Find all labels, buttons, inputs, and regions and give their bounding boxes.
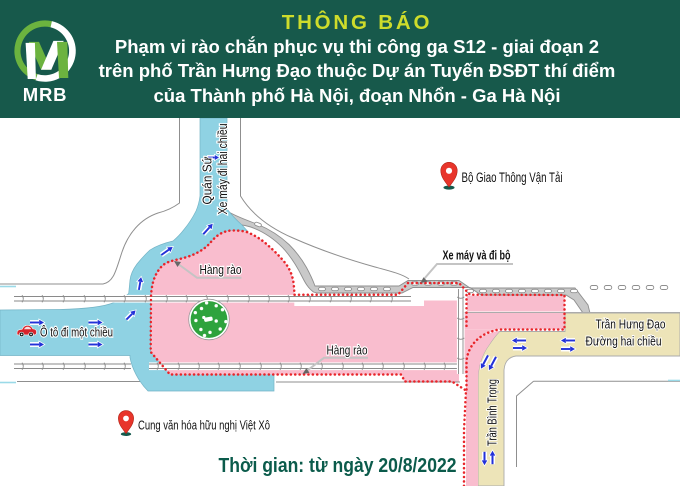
svg-text:Xe máy đi hai chiều: Xe máy đi hai chiều xyxy=(215,124,230,215)
svg-text:Xe máy và đi bộ: Xe máy và đi bộ xyxy=(443,248,511,263)
svg-text:Trần Bình Trọng: Trần Bình Trọng xyxy=(485,379,500,446)
svg-text:Trần Hưng Đạo: Trần Hưng Đạo xyxy=(596,317,666,332)
svg-text:Đường hai chiều: Đường hai chiều xyxy=(586,334,662,349)
svg-text:Hàng rào: Hàng rào xyxy=(200,262,242,277)
svg-text:Quán Sứ: Quán Sứ xyxy=(200,156,215,204)
svg-text:Bộ Giao Thông Vận Tải: Bộ Giao Thông Vận Tải xyxy=(462,170,563,185)
svg-text:Thời gian: từ ngày 20/8/2022: Thời gian: từ ngày 20/8/2022 xyxy=(219,454,457,477)
svg-text:Cung văn hóa hữu nghị Việt Xô: Cung văn hóa hữu nghị Việt Xô xyxy=(138,418,270,433)
svg-text:Hàng rào: Hàng rào xyxy=(327,343,368,358)
svg-text:Ô tô đi một chiều: Ô tô đi một chiều xyxy=(40,325,113,340)
